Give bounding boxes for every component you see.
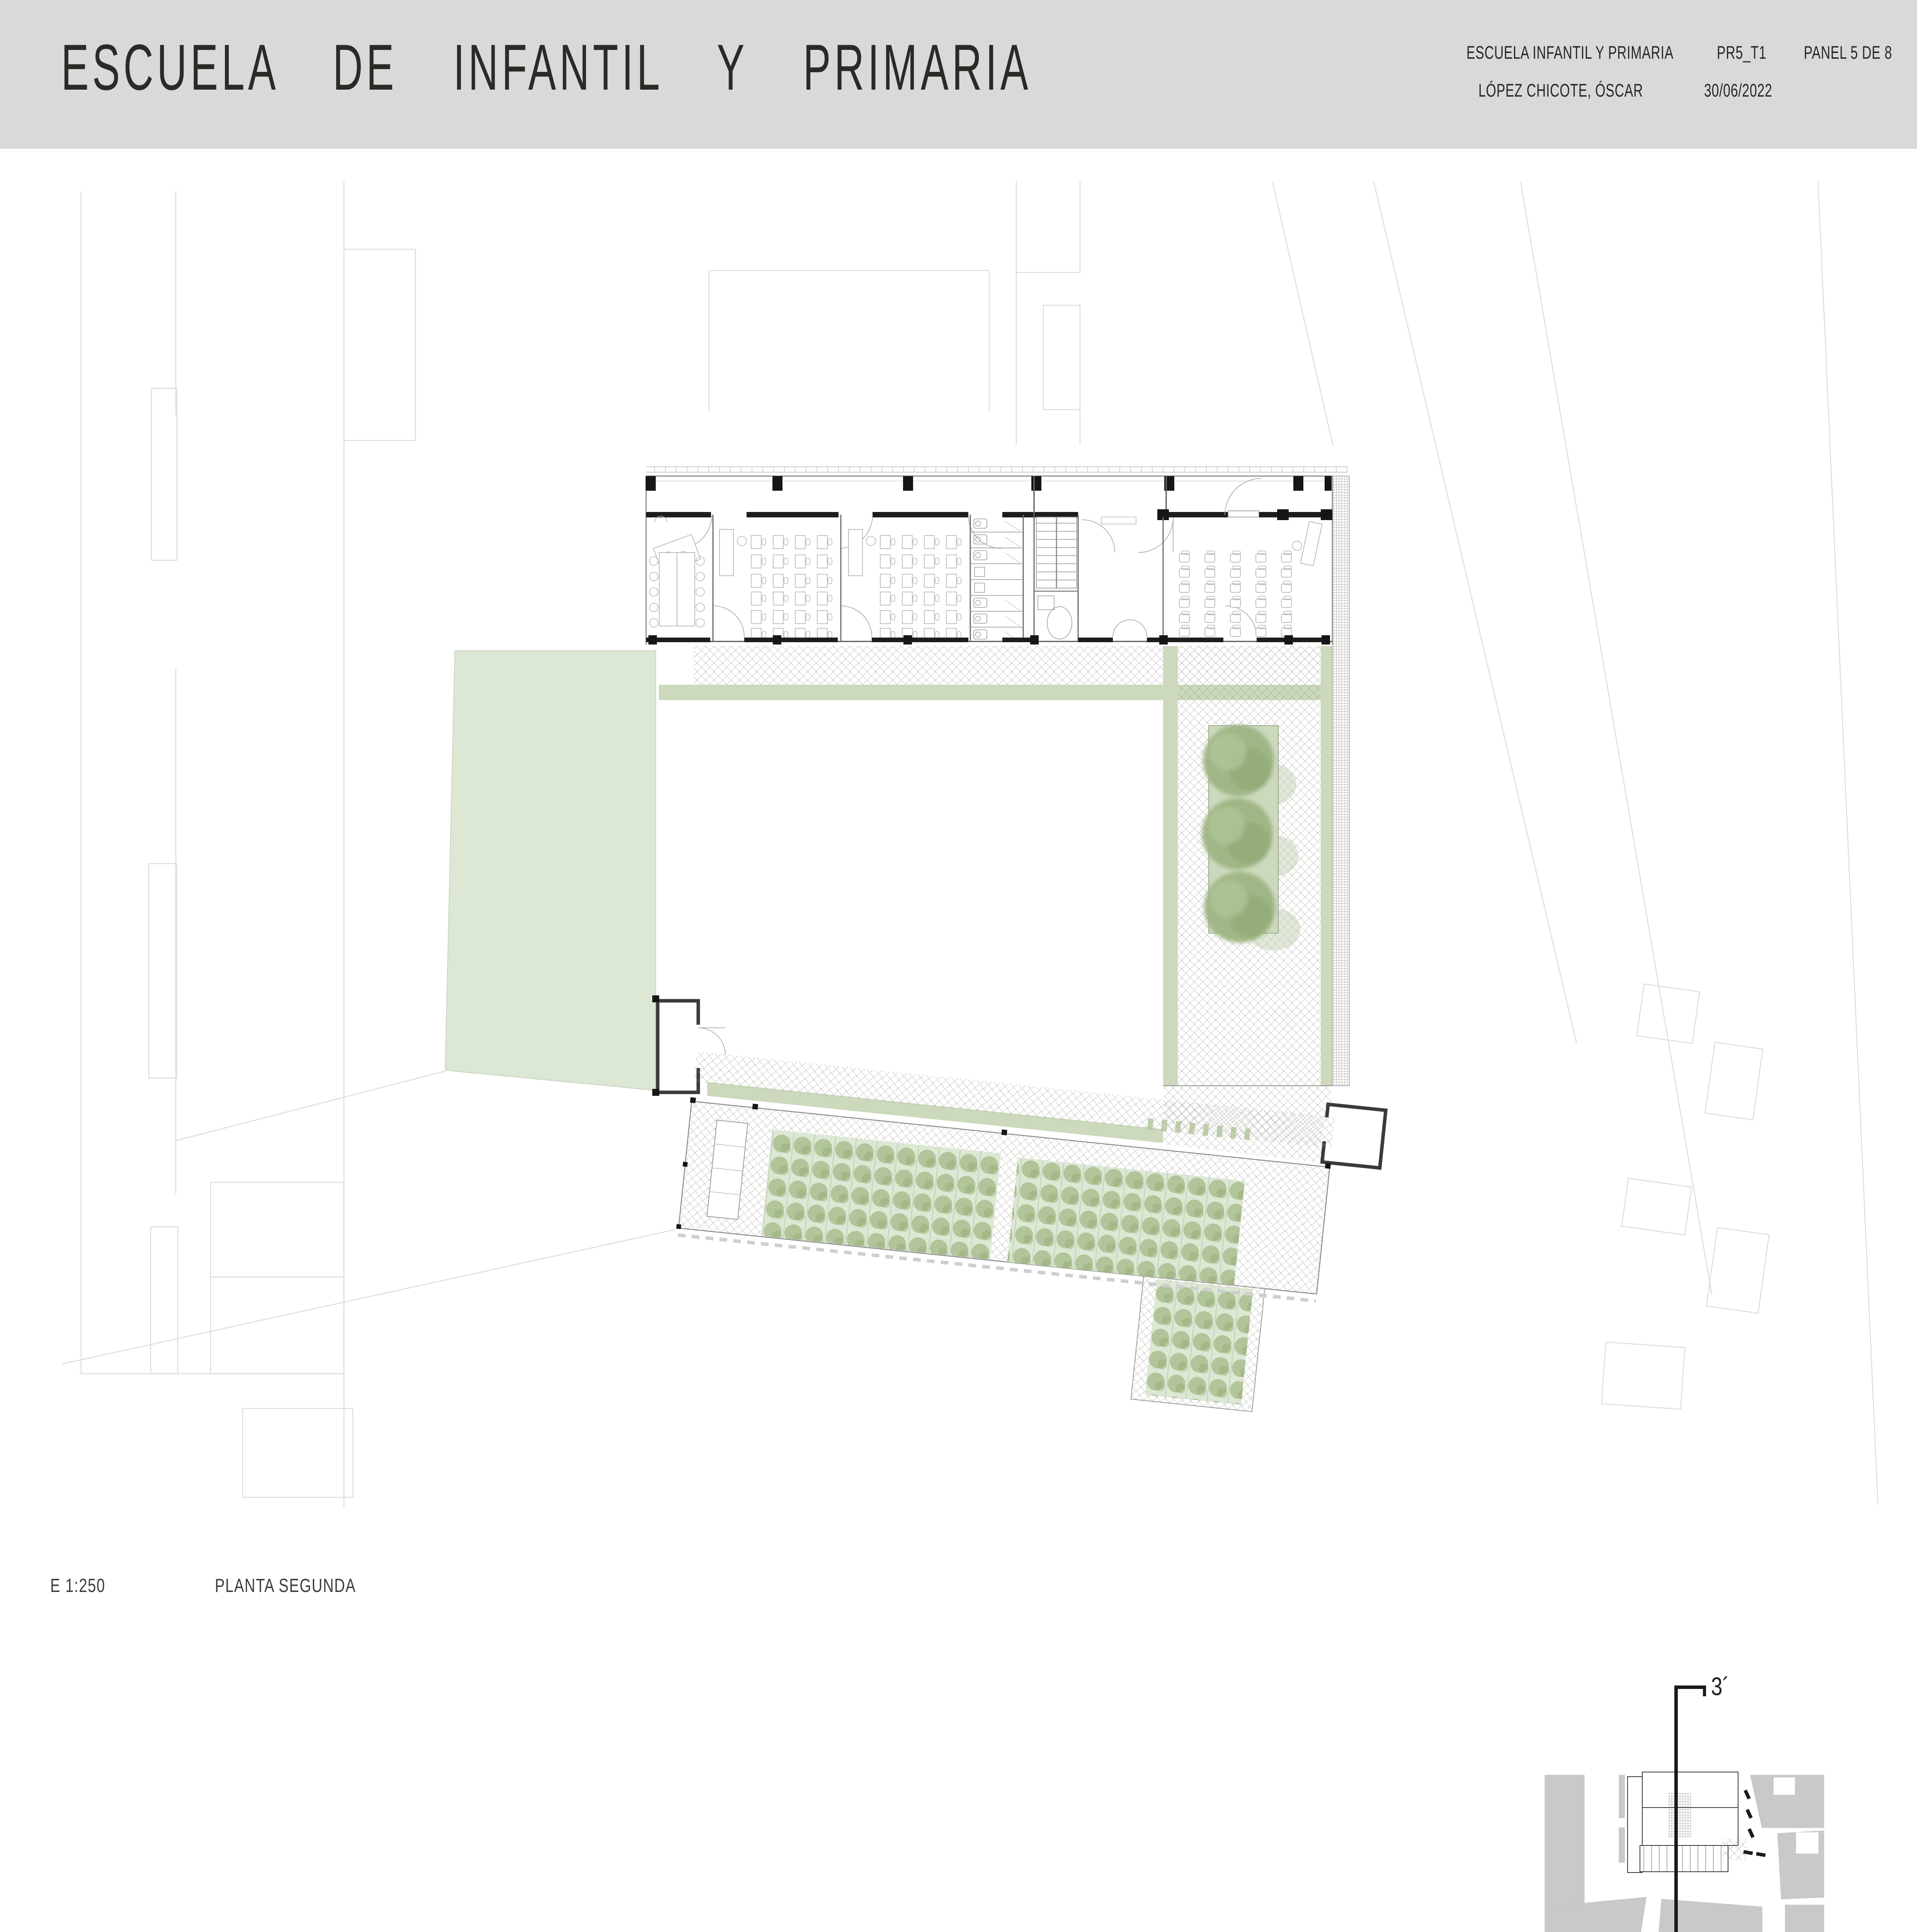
date: 30/06/2022 <box>1704 80 1772 101</box>
plan-scale-label: E 1:250 <box>50 1575 105 1597</box>
project-code: PR5_T1 <box>1717 42 1766 63</box>
plan-title-label: PLANTA SEGUNDA <box>215 1575 356 1597</box>
panel-number: PANEL 5 DE 8 <box>1804 42 1892 63</box>
plan-context <box>62 182 1878 1507</box>
wc-cells <box>970 519 1023 641</box>
plan-trees <box>1202 725 1275 943</box>
panel-title: ESCUELA DE INFANTIL Y PRIMARIA <box>61 30 1032 105</box>
keymap <box>1545 1685 1824 1932</box>
section-mark-top: 3´ <box>1711 1672 1729 1701</box>
header-band: ESCUELA DE INFANTIL Y PRIMARIA ESCUELA I… <box>0 0 1917 149</box>
plan-classroom-wing <box>646 467 1348 645</box>
project-name: ESCUELA INFANTIL Y PRIMARIA <box>1466 42 1674 63</box>
panel-sheet: { "header": { "title": "ESCUELA DE INFAN… <box>0 0 1917 1932</box>
drawing-canvas <box>0 0 1917 1932</box>
plan-landscape <box>445 476 1349 1164</box>
author-name: LÓPEZ CHICOTE, ÓSCAR <box>1478 80 1643 101</box>
